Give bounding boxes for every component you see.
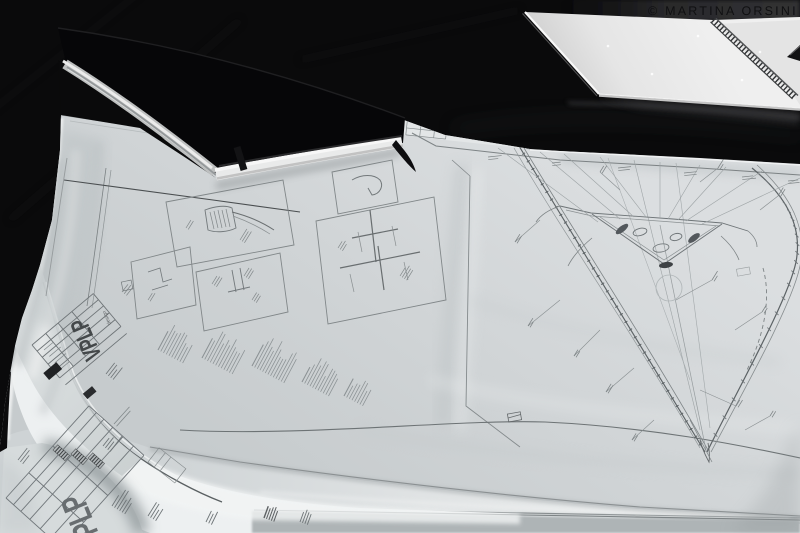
svg-text:© MARTINA ORSINI: © MARTINA ORSINI	[648, 4, 798, 18]
